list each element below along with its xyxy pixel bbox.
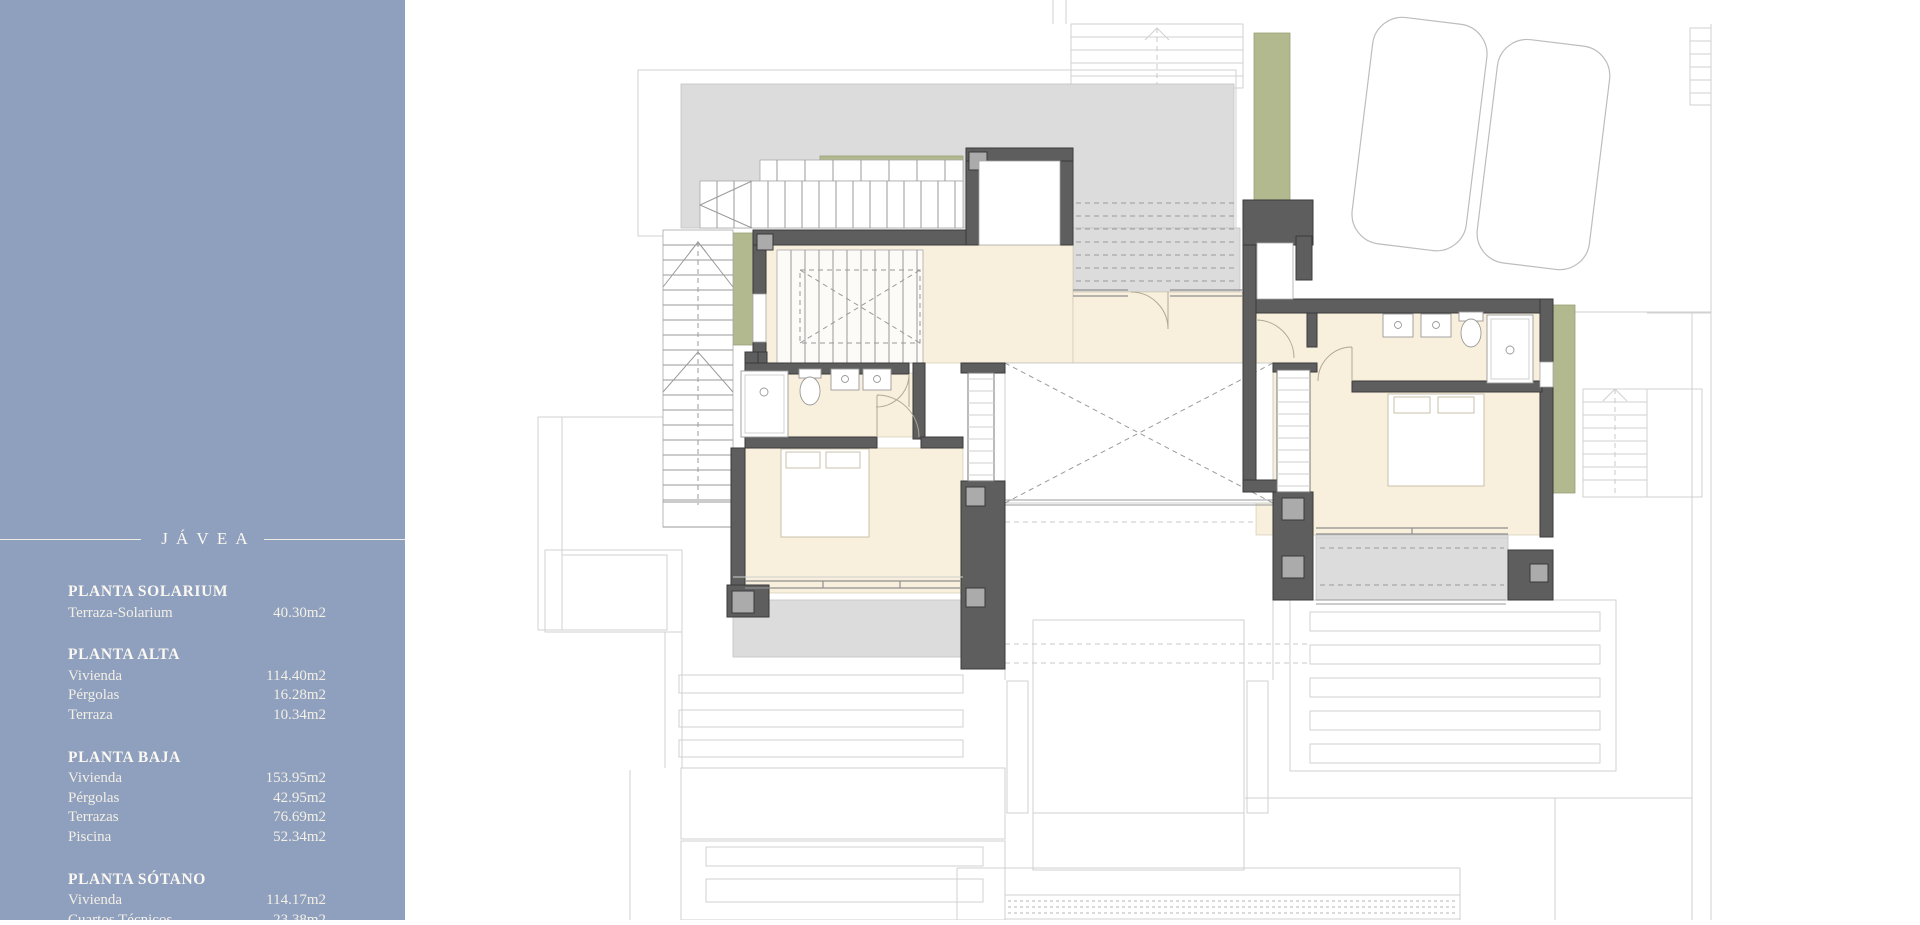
area-value: 23.38m2 bbox=[273, 911, 326, 920]
area-row: Cuartos Técnicos 23.38m2 bbox=[68, 911, 326, 920]
area-row: Terraza-Solarium 40.30m2 bbox=[68, 604, 326, 624]
info-sidebar: JÁVEA PLANTA SOLARIUM Terraza-Solarium 4… bbox=[0, 0, 405, 920]
corridor-floor bbox=[1073, 292, 1243, 363]
area-value: 153.95m2 bbox=[266, 769, 326, 789]
pergola-slats-left bbox=[679, 675, 1005, 920]
car-outline bbox=[1349, 14, 1491, 254]
section-planta-alta: PLANTA ALTA Vivienda 114.40m2 Pérgolas 1… bbox=[68, 645, 326, 725]
area-value: 52.34m2 bbox=[273, 828, 326, 848]
shower-1 bbox=[741, 371, 788, 437]
section-planta-sotano: PLANTA SÓTANO Vivienda 114.17m2 Cuartos … bbox=[68, 870, 326, 920]
area-label: Pérgolas bbox=[68, 789, 119, 809]
area-label: Piscina bbox=[68, 828, 111, 848]
pool-edge bbox=[957, 868, 1460, 920]
area-schedule: PLANTA SOLARIUM Terraza-Solarium 40.30m2… bbox=[68, 582, 326, 920]
section-heading: PLANTA SÓTANO bbox=[68, 870, 326, 890]
area-label: Vivienda bbox=[68, 667, 122, 687]
pergola-slats-right bbox=[1290, 600, 1616, 771]
section-heading: PLANTA ALTA bbox=[68, 645, 326, 665]
area-value: 42.95m2 bbox=[273, 789, 326, 809]
area-value: 114.17m2 bbox=[266, 891, 326, 911]
area-row: Piscina 52.34m2 bbox=[68, 828, 326, 848]
area-label: Terrazas bbox=[68, 808, 119, 828]
area-row: Vivienda 153.95m2 bbox=[68, 769, 326, 789]
void-x bbox=[1005, 363, 1273, 505]
project-title: JÁVEA bbox=[141, 529, 264, 549]
area-value: 40.30m2 bbox=[273, 604, 326, 624]
area-row: Vivienda 114.40m2 bbox=[68, 667, 326, 687]
car-outline bbox=[1474, 36, 1614, 273]
area-row: Vivienda 114.17m2 bbox=[68, 891, 326, 911]
area-row: Terraza 10.34m2 bbox=[68, 706, 326, 726]
brand-rule-left bbox=[0, 539, 141, 540]
area-label: Terraza bbox=[68, 706, 113, 726]
area-label: Cuartos Técnicos bbox=[68, 911, 172, 920]
section-planta-solarium: PLANTA SOLARIUM Terraza-Solarium 40.30m2 bbox=[68, 582, 326, 623]
area-label: Pérgolas bbox=[68, 686, 119, 706]
area-value: 10.34m2 bbox=[273, 706, 326, 726]
area-value: 114.40m2 bbox=[266, 667, 326, 687]
area-value: 76.69m2 bbox=[273, 808, 326, 828]
section-heading: PLANTA BAJA bbox=[68, 748, 326, 768]
area-row: Pérgolas 16.28m2 bbox=[68, 686, 326, 706]
area-value: 16.28m2 bbox=[273, 686, 326, 706]
section-planta-baja: PLANTA BAJA Vivienda 153.95m2 Pérgolas 4… bbox=[68, 748, 326, 848]
toilet-2 bbox=[1461, 319, 1481, 347]
parking-cars bbox=[1349, 14, 1614, 273]
area-label: Vivienda bbox=[68, 769, 122, 789]
brand-rule-right bbox=[264, 539, 405, 540]
brand-header: JÁVEA bbox=[0, 529, 405, 549]
interior-stair bbox=[777, 250, 923, 363]
area-label: Vivienda bbox=[68, 891, 122, 911]
area-label: Terraza-Solarium bbox=[68, 604, 173, 624]
area-row: Pérgolas 42.95m2 bbox=[68, 789, 326, 809]
area-row: Terrazas 76.69m2 bbox=[68, 808, 326, 828]
section-heading: PLANTA SOLARIUM bbox=[68, 582, 326, 602]
toilet-1 bbox=[800, 377, 820, 405]
